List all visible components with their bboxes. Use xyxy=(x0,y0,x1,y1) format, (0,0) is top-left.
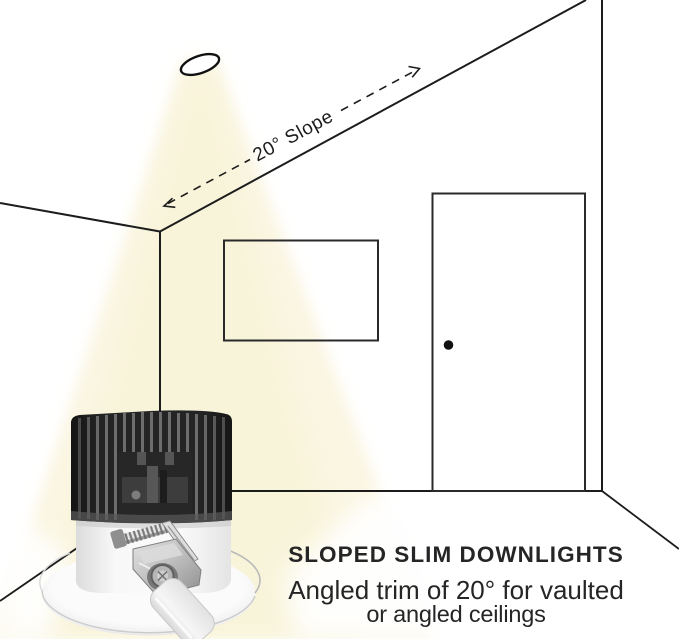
svg-text:or angled ceilings: or angled ceilings xyxy=(366,601,545,627)
svg-text:SLOPED SLIM DOWNLIGHTS: SLOPED SLIM DOWNLIGHTS xyxy=(288,542,624,567)
